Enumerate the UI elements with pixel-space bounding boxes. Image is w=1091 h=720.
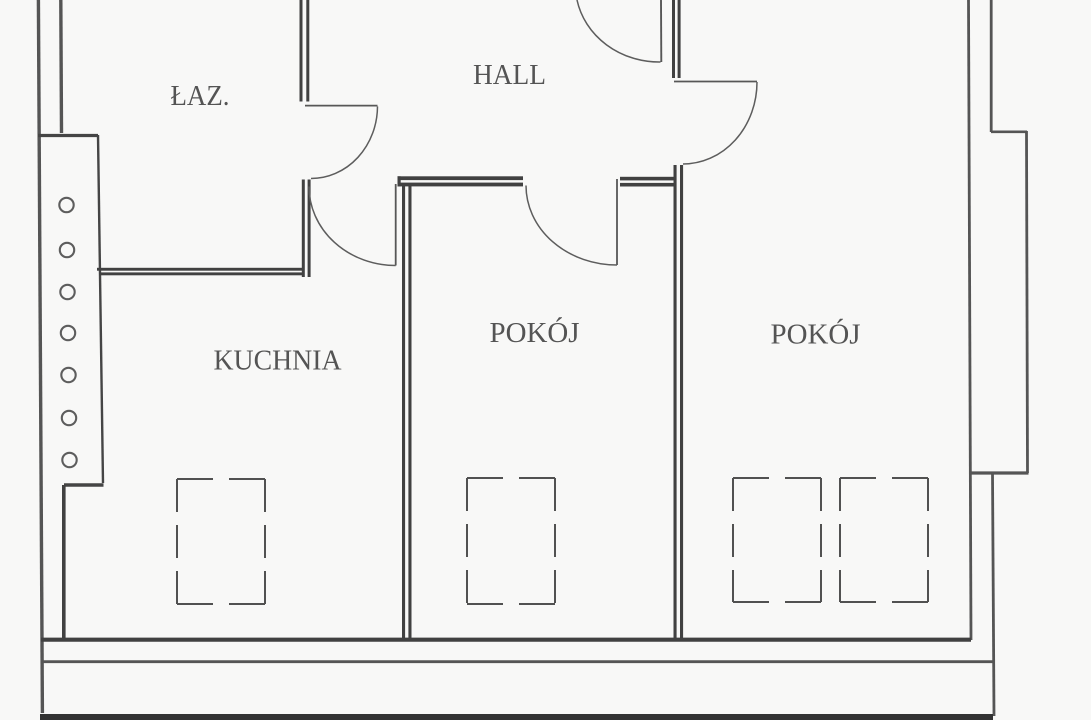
svg-text:POKÓJ: POKÓJ (771, 318, 861, 351)
svg-text:HALL: HALL (473, 59, 546, 91)
svg-text:POKÓJ: POKÓJ (490, 316, 580, 349)
svg-text:ŁAZ.: ŁAZ. (171, 80, 230, 112)
svg-text:KUCHNIA: KUCHNIA (214, 345, 342, 377)
